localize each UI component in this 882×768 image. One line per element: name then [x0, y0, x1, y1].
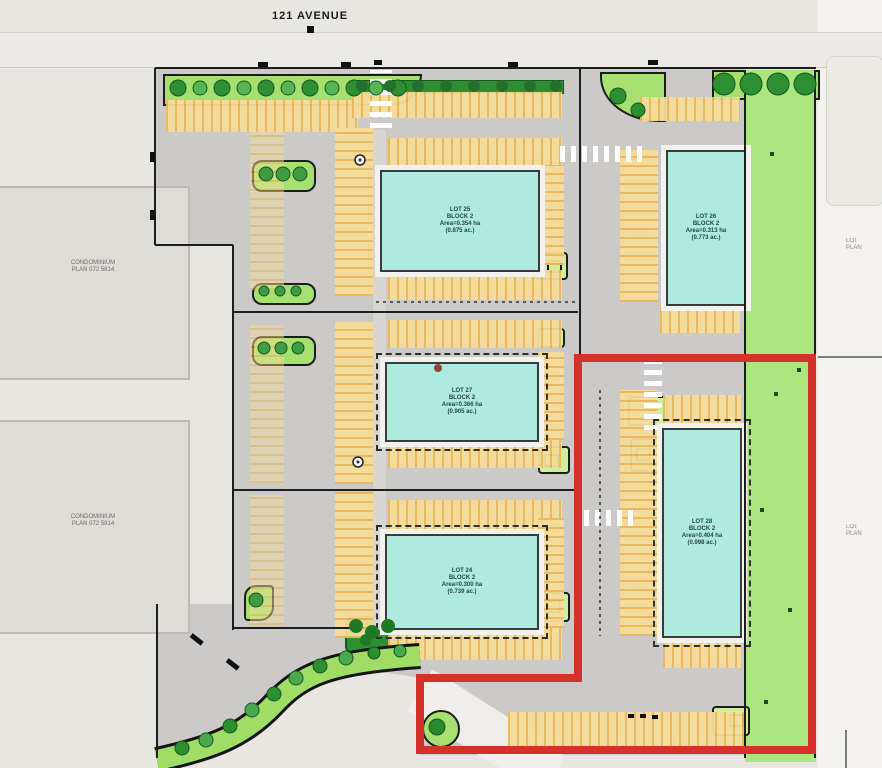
site-plan: 121 AVENUE CONDOMINIUM PLAN 072 5814 CON… [0, 0, 882, 768]
subject-lot-boundary [420, 358, 812, 750]
linework-layer [0, 0, 882, 768]
